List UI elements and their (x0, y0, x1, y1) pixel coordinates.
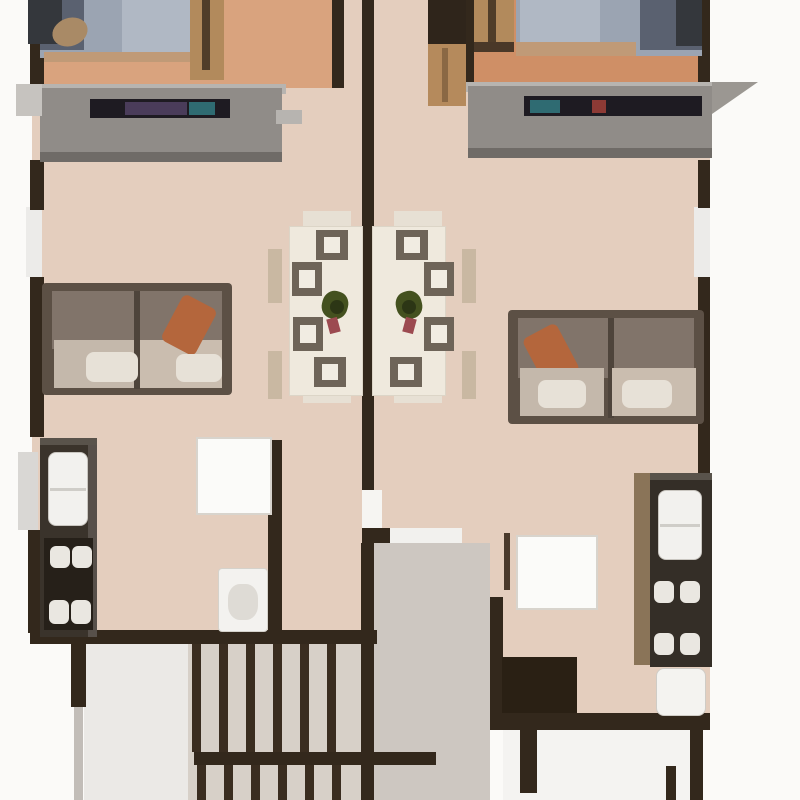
left-chair-side-1-pad (299, 270, 315, 288)
stair-bar-9 (251, 765, 260, 800)
right-tv-cabinet-bottom (468, 148, 712, 158)
wall-center-stub (362, 528, 390, 543)
left-chair-side-2-pad (300, 325, 316, 343)
right-chair-top-pad (404, 237, 420, 253)
stair-bar-12 (332, 765, 341, 800)
left-burner-1 (50, 546, 70, 568)
right-bed-tan-strip (516, 42, 636, 56)
right-bed-side-frame-base (474, 42, 514, 52)
door-leaf-right-bath (504, 533, 510, 590)
right-kitchen-counter-edge (650, 473, 712, 480)
right-kitchen-sink-divider (660, 524, 700, 527)
left-burner-4 (71, 600, 91, 624)
right-chair-backrest-2 (462, 351, 476, 399)
right-burner-3 (654, 633, 674, 655)
stair-bar-11 (305, 765, 314, 800)
right-kitchen-appliance (656, 668, 706, 716)
stair-rail-lower (194, 752, 436, 765)
left-tv-cabinet-bottom (40, 152, 282, 162)
wall-stub-outside-left (71, 633, 86, 707)
right-tv-screen-teal (530, 100, 560, 113)
stair-bar-5 (300, 644, 309, 752)
left-tv-screen-teal (189, 102, 215, 115)
left-kitchen-counter-edge (40, 438, 97, 445)
stair-bar-2 (219, 644, 228, 752)
right-wardrobe-top (428, 0, 466, 44)
left-chair-backrest-2 (268, 351, 282, 399)
wall-stub-entry (520, 730, 537, 793)
left-bed-side-frame-line (202, 0, 210, 70)
left-tv-cabinet-tab (276, 110, 302, 124)
wall-stub-entry-right (666, 766, 676, 800)
left-burner-3 (49, 600, 69, 624)
left-table-plant-core (330, 300, 344, 314)
right-chair-side-1-pad (431, 270, 447, 288)
stair-bar-8 (224, 765, 233, 800)
right-bed-side-frame-line (488, 0, 496, 42)
left-sofa-cushion-a (86, 352, 138, 382)
right-shower (516, 535, 598, 610)
right-chair-backrest-1 (462, 249, 476, 303)
right-sofa-cushion-a (538, 380, 586, 408)
stair-bar-3 (246, 644, 255, 752)
left-bed-mattress-highlight (122, 0, 196, 52)
left-shower (196, 437, 272, 515)
left-tv-screen-purple (125, 102, 187, 115)
right-burner-4 (680, 633, 700, 655)
left-bed-frame-shadow (44, 52, 194, 62)
left-kitchen-sink-divider (50, 488, 86, 491)
left-tv-cabinet-wing (16, 84, 42, 116)
window-left-kitchen (18, 452, 38, 530)
outside-bottom-left-floor (84, 633, 192, 800)
stair-bar-6 (327, 644, 336, 752)
left-chair-backrest-1 (268, 249, 282, 303)
stair-bar-4 (273, 644, 282, 752)
right-chair-bottom-pad (398, 364, 414, 380)
wall-right-outer-lower (690, 730, 703, 800)
right-burner-2 (680, 581, 700, 603)
dark-shaft-right-unit (502, 657, 577, 713)
wall-left-bedroom-divider (332, 0, 344, 88)
right-table-plant-core (402, 300, 416, 314)
door-threshold (390, 528, 462, 543)
left-chair-top-pad (324, 237, 340, 253)
left-burner-2 (72, 546, 92, 568)
right-sofa-cushion-b (622, 380, 672, 408)
wall-left-mid (30, 160, 44, 210)
right-tv-cabinet-wing (712, 82, 758, 114)
left-toilet-seat (228, 584, 258, 620)
window-left-bedroom (26, 207, 42, 277)
center-door-gap (362, 490, 382, 528)
right-chair-side-2-pad (431, 325, 447, 343)
stair-bar-1 (192, 644, 201, 752)
wall-stub-outside-left-light (74, 707, 83, 800)
floorplan-stage (0, 0, 800, 800)
right-bed-pillow-corner (676, 0, 702, 46)
left-chair-bottom-pad (322, 364, 338, 380)
window-right-bedroom (694, 207, 710, 277)
left-sofa-cushion-b (176, 354, 222, 382)
right-burner-1 (654, 581, 674, 603)
right-tv-screen-red (592, 100, 606, 113)
wall-right-mid (698, 160, 710, 208)
stair-bar-7 (197, 765, 206, 800)
right-wardrobe-line (442, 48, 448, 102)
stair-bar-10 (278, 765, 287, 800)
